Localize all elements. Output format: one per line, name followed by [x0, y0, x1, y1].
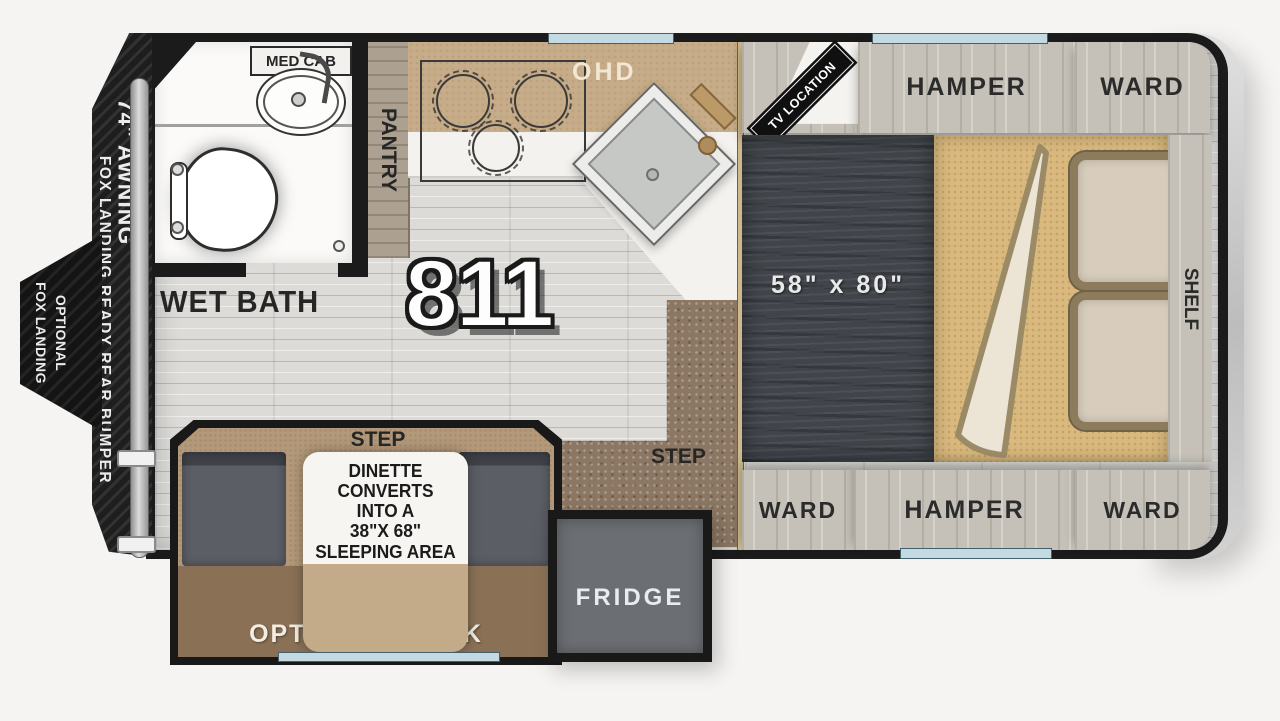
pillow	[1070, 152, 1182, 290]
ward-bottom-right-label: WARD	[1103, 497, 1181, 524]
bumper-bracket	[117, 536, 156, 553]
fridge-box: FRIDGE	[557, 519, 703, 653]
fox-landing-arrow-line2: FOX LANDING	[33, 282, 49, 384]
bathroom-door-knob	[333, 240, 345, 252]
bathroom-wall-right	[352, 42, 368, 277]
window	[548, 33, 674, 44]
bumper-bar	[130, 78, 149, 558]
hamper-top-label: HAMPER	[906, 73, 1026, 102]
wet-bath-label: WET BATH	[160, 284, 329, 320]
corner-sink-knob	[698, 136, 717, 155]
bathroom-wall-bottom-left	[146, 263, 246, 277]
ward-top-label: WARD	[1100, 73, 1184, 102]
window	[278, 652, 500, 662]
pillow	[1070, 292, 1182, 430]
cabinet-ward-bottom-right: WARD	[1075, 470, 1210, 550]
pantry-cabinet: PANTRY	[368, 42, 410, 258]
bed-mattress: 58" x 80"	[742, 135, 934, 462]
dinette-seat-right	[458, 452, 550, 566]
burner-icon	[436, 74, 490, 128]
bathroom-wall-bottom-right	[338, 263, 368, 277]
shelf-label: SHELF	[1179, 267, 1201, 329]
ohd-label: OHD	[572, 58, 637, 87]
fox-landing-arrow-line1: OPTIONAL	[53, 295, 69, 371]
ward-bottom-left-label: WARD	[759, 497, 837, 524]
pantry-label: PANTRY	[376, 108, 400, 192]
cabinet-hamper-bottom: HAMPER	[854, 470, 1075, 550]
bed-size-label: 58" x 80"	[771, 271, 905, 326]
bumper-bracket	[117, 450, 156, 467]
dinette-seat-left	[182, 452, 286, 566]
cabinet-ward-top: WARD	[1075, 42, 1210, 133]
step-label-hall: STEP	[651, 445, 706, 469]
floorplan-811: MED CAB WET BATH PANTRY OHD STEP 811 HAM…	[0, 0, 1280, 721]
window	[900, 548, 1052, 559]
hamper-bottom-label: HAMPER	[904, 496, 1024, 525]
window	[872, 33, 1048, 44]
step-label-dinette: STEP	[340, 428, 416, 452]
toilet-bolt	[171, 163, 184, 176]
dinette-table: DINETTE CONVERTS INTO A 38"X 68" SLEEPIN…	[303, 452, 468, 652]
cabinet-hamper-top: HAMPER	[858, 42, 1075, 133]
burner-icon	[472, 124, 520, 172]
model-number: 811	[405, 240, 552, 349]
burner-icon	[514, 74, 568, 128]
sink-drain	[291, 92, 306, 107]
stove-cooktop	[420, 60, 586, 182]
shelf-cabinet: SHELF	[1168, 135, 1212, 462]
toilet-bolt	[171, 221, 184, 234]
fridge-label: FRIDGE	[576, 584, 685, 612]
dinette-note: DINETTE CONVERTS INTO A 38"X 68" SLEEPIN…	[306, 452, 464, 562]
cabinet-ward-bottom-left: WARD	[742, 470, 854, 550]
